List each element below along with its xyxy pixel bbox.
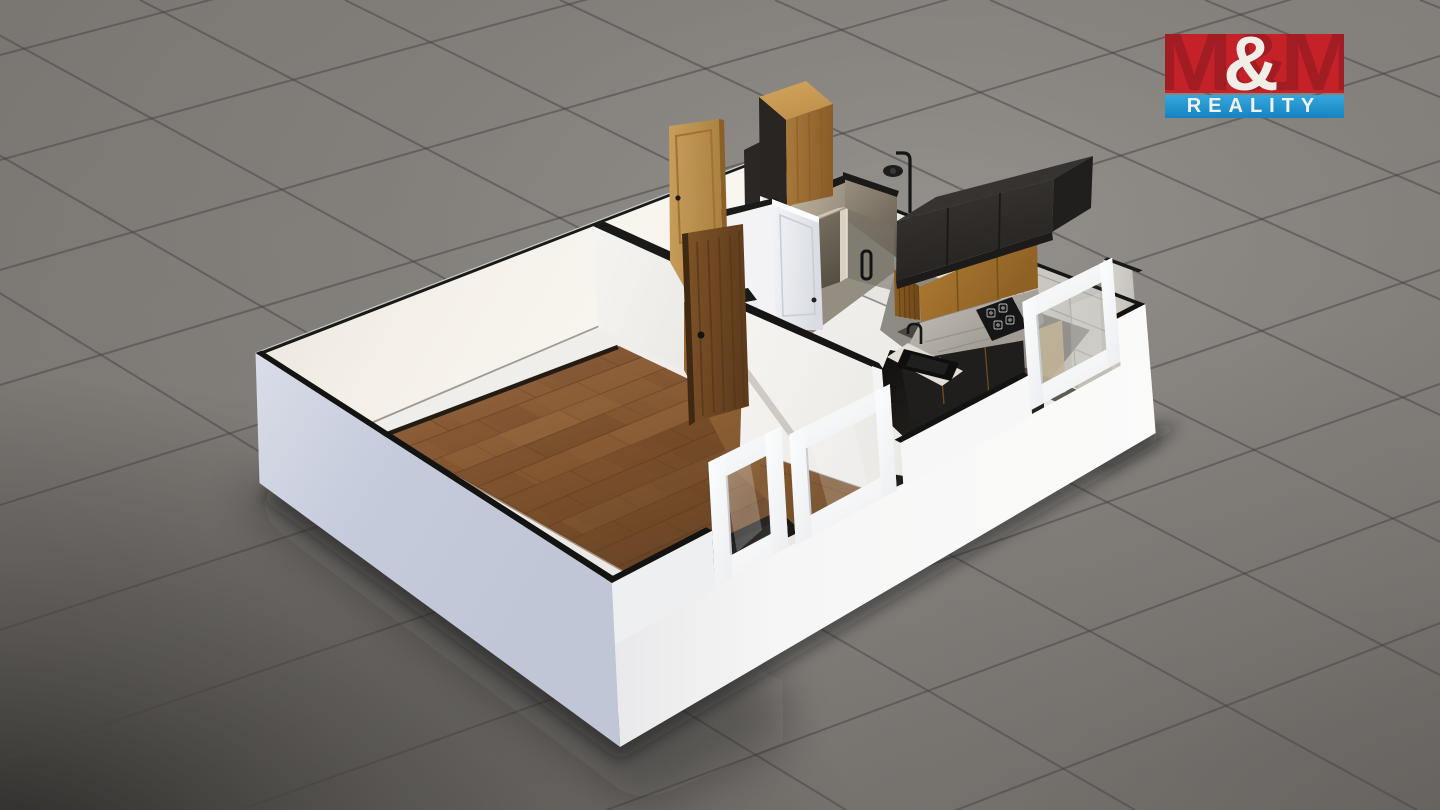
svg-text:REALITY: REALITY bbox=[1187, 95, 1322, 117]
